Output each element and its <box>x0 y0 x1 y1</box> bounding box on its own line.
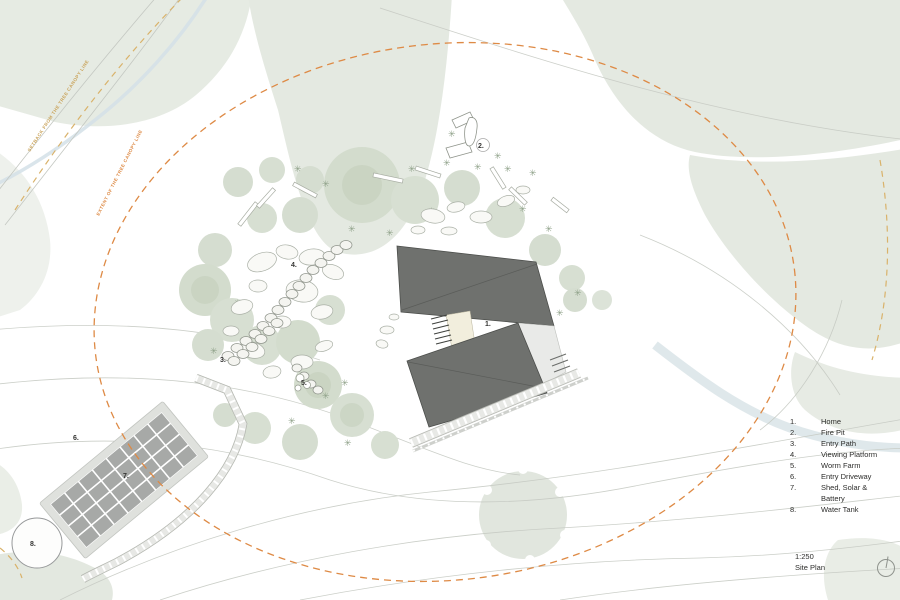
legend-label: Viewing Platform <box>821 449 885 460</box>
legend-number: 7. <box>790 482 821 504</box>
drawing-scale: 1:250 <box>795 551 825 562</box>
solar-shed <box>39 401 208 558</box>
legend-row: 3.Entry Path <box>790 438 900 449</box>
legend-label: Worm Farm <box>821 460 885 471</box>
marker-fire-pit: 2. <box>478 143 484 150</box>
marker-entry-driveway: 6. <box>73 435 79 442</box>
svg-text:✳: ✳ <box>448 129 456 139</box>
house-roof-upper <box>397 246 554 326</box>
legend-row: 8.Water Tank <box>790 504 900 515</box>
legend-label: Home <box>821 416 885 427</box>
legend-number: 4. <box>790 449 821 460</box>
svg-text:✳: ✳ <box>545 224 553 234</box>
legend-label: Entry Driveway <box>821 471 885 482</box>
legend-row: 6.Entry Driveway <box>790 471 900 482</box>
legend-label: Water Tank <box>821 504 885 515</box>
water-tank <box>12 518 62 568</box>
legend-row: 5.Worm Farm <box>790 460 900 471</box>
svg-text:✳: ✳ <box>574 288 582 298</box>
svg-text:✳: ✳ <box>556 308 564 318</box>
legend-row: 1.Home <box>790 416 900 427</box>
legend: 1.Home 2.Fire Pit 3.Entry Path 4.Viewing… <box>790 416 900 515</box>
svg-text:✳: ✳ <box>322 179 330 189</box>
legend-label: Entry Path <box>821 438 885 449</box>
svg-text:✳: ✳ <box>529 168 537 178</box>
legend-number: 3. <box>790 438 821 449</box>
legend-label: Shed, Solar & Battery <box>821 482 885 504</box>
svg-text:✳: ✳ <box>344 438 352 448</box>
marker-shed-solar: 7. <box>123 473 129 480</box>
svg-text:✳: ✳ <box>386 228 394 238</box>
drawing-name: Site Plan <box>795 562 825 573</box>
legend-row: 2.Fire Pit <box>790 427 900 438</box>
legend-label: Fire Pit <box>821 427 885 438</box>
legend-number: 1. <box>790 416 821 427</box>
title-block: 1:250 Site Plan <box>795 551 825 573</box>
tree-canopy-lone <box>479 464 570 565</box>
svg-text:✳: ✳ <box>408 164 416 174</box>
legend-number: 6. <box>790 471 821 482</box>
svg-text:✳: ✳ <box>294 164 302 174</box>
legend-number: 5. <box>790 460 821 471</box>
site-plan-page: ✳✳ ✳✳ ✳✳ ✳✳ ✳✳ ✳✳ ✳✳ ✳✳ ✳✳ ✳✳ ✳✳ <box>0 0 900 600</box>
svg-text:✳: ✳ <box>348 224 356 234</box>
marker-water-tank: 8. <box>30 541 36 548</box>
legend-number: 8. <box>790 504 821 515</box>
boundary-line-label: EXTENT OF THE TREE CANOPY LINE <box>95 129 143 217</box>
legend-row: 7.Shed, Solar & Battery <box>790 482 900 504</box>
marker-entry-path: 3. <box>220 357 226 364</box>
marker-home: 1. <box>485 321 491 328</box>
marker-worm-farm: 5. <box>301 380 307 387</box>
svg-text:✳: ✳ <box>504 164 512 174</box>
svg-text:✳: ✳ <box>288 416 296 426</box>
svg-text:✳: ✳ <box>341 378 349 388</box>
svg-text:✳: ✳ <box>474 162 482 172</box>
svg-text:✳: ✳ <box>210 346 218 356</box>
legend-row: 4.Viewing Platform <box>790 449 900 460</box>
svg-text:✳: ✳ <box>494 151 502 161</box>
legend-number: 2. <box>790 427 821 438</box>
svg-text:✳: ✳ <box>443 158 451 168</box>
svg-text:✳: ✳ <box>322 391 330 401</box>
site-plan-canvas: ✳✳ ✳✳ ✳✳ ✳✳ ✳✳ ✳✳ ✳✳ ✳✳ ✳✳ ✳✳ ✳✳ <box>0 0 900 600</box>
marker-viewing-platform: 4. <box>291 262 297 269</box>
svg-text:✳: ✳ <box>519 204 527 214</box>
